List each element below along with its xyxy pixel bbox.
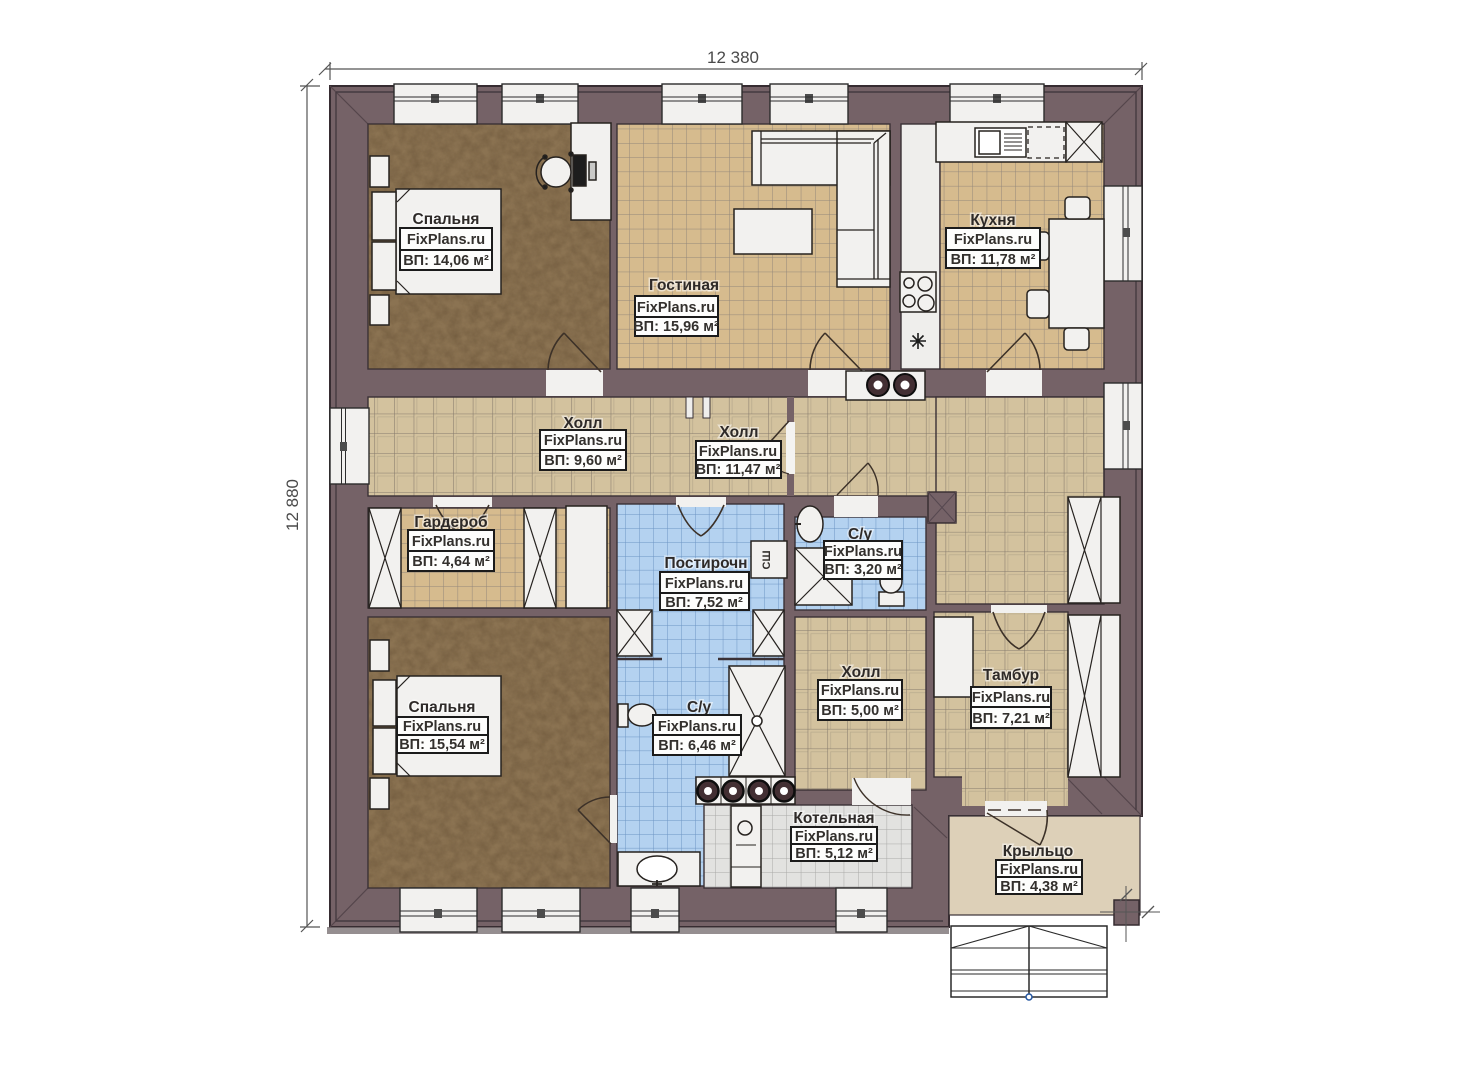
svg-text:ВП: 15,54 м²: ВП: 15,54 м² [399,737,485,753]
svg-text:ВП: 7,52 м²: ВП: 7,52 м² [665,595,743,611]
svg-text:FixPlans.ru: FixPlans.ru [821,683,899,699]
svg-text:FixPlans.ru: FixPlans.ru [544,433,622,449]
svg-text:СШ: СШ [761,551,773,570]
svg-text:Холл: Холл [720,424,759,441]
svg-text:FixPlans.ru: FixPlans.ru [658,719,736,735]
svg-text:Гостиная: Гостиная [649,277,719,294]
svg-text:FixPlans.ru: FixPlans.ru [665,576,743,592]
svg-text:Тамбур: Тамбур [983,667,1039,684]
svg-text:12 880: 12 880 [283,479,302,531]
svg-text:ВП: 14,06 м²: ВП: 14,06 м² [403,253,489,269]
svg-text:FixPlans.ru: FixPlans.ru [412,534,490,550]
svg-text:Крыльцо: Крыльцо [1003,843,1074,860]
svg-text:ВП: 15,96 м²: ВП: 15,96 м² [633,319,719,335]
svg-text:FixPlans.ru: FixPlans.ru [1000,862,1078,878]
svg-text:FixPlans.ru: FixPlans.ru [699,444,777,460]
svg-text:12 380: 12 380 [707,48,759,67]
svg-text:FixPlans.ru: FixPlans.ru [972,690,1050,706]
svg-text:FixPlans.ru: FixPlans.ru [824,544,902,560]
svg-text:FixPlans.ru: FixPlans.ru [637,300,715,316]
svg-text:Спальня: Спальня [413,211,480,228]
svg-text:FixPlans.ru: FixPlans.ru [954,232,1032,248]
svg-text:ВП: 3,20 м²: ВП: 3,20 м² [824,562,902,578]
svg-text:ВП: 5,12 м²: ВП: 5,12 м² [795,846,873,862]
svg-text:Холл: Холл [842,664,881,681]
svg-text:ВП: 5,00 м²: ВП: 5,00 м² [821,703,899,719]
svg-text:ВП: 7,21 м²: ВП: 7,21 м² [972,711,1050,727]
svg-text:Кухня: Кухня [970,212,1015,229]
svg-text:ВП: 11,78 м²: ВП: 11,78 м² [951,252,1036,268]
svg-text:ВП: 4,64 м²: ВП: 4,64 м² [412,554,490,570]
svg-text:ВП: 6,46 м²: ВП: 6,46 м² [658,738,736,754]
svg-text:Спальня: Спальня [409,699,476,716]
svg-text:Котельная: Котельная [793,810,874,827]
svg-text:FixPlans.ru: FixPlans.ru [795,829,873,845]
svg-text:ВП: 4,38 м²: ВП: 4,38 м² [1000,879,1078,895]
svg-text:FixPlans.ru: FixPlans.ru [407,232,485,248]
svg-text:Гардероб: Гардероб [414,514,487,531]
svg-text:ВП: 9,60 м²: ВП: 9,60 м² [544,453,622,469]
svg-text:С/у: С/у [687,699,712,716]
svg-text:ВП: 11,47 м²: ВП: 11,47 м² [696,462,781,478]
svg-text:FixPlans.ru: FixPlans.ru [403,719,481,735]
svg-text:Постирочн: Постирочн [664,555,747,572]
